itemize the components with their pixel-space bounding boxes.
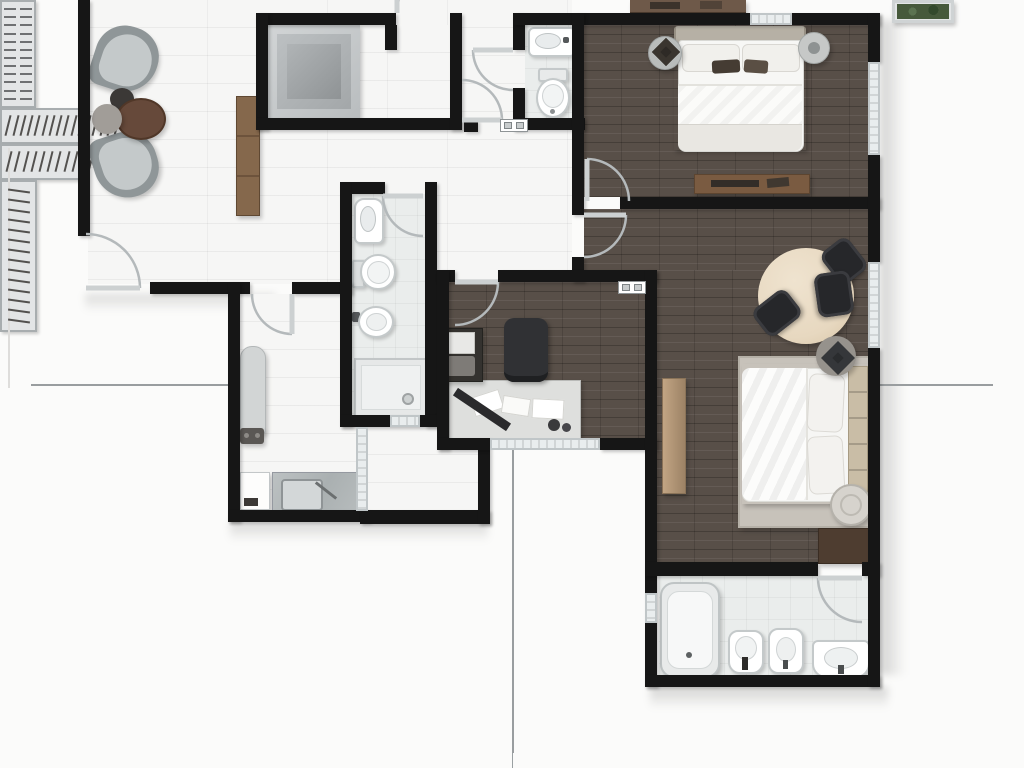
hanger-tick (63, 116, 70, 137)
hanger-tick (63, 152, 70, 173)
hanger-tick (4, 33, 16, 35)
bathtub-drain (686, 652, 692, 658)
hanger-tick (8, 238, 30, 243)
hanger-tick (5, 116, 12, 137)
bedroom1-nightstand-right (798, 32, 830, 64)
wc-basin-bowl (535, 33, 561, 49)
hanger-tick (20, 90, 32, 92)
outlet-pole (516, 122, 524, 129)
cabinet-item (447, 356, 475, 376)
sideboard-divider (237, 175, 259, 177)
bed1-duvet (678, 84, 802, 128)
wall (352, 182, 385, 194)
hanger-tick (20, 73, 32, 75)
wall (340, 415, 437, 427)
hanger-tick (41, 116, 48, 137)
outlet-pole (634, 284, 642, 291)
leg-dot (244, 433, 249, 438)
office-printer-cabinet (443, 328, 483, 382)
hanger-tick (38, 152, 45, 173)
wall (478, 450, 490, 524)
desk-camera (548, 419, 560, 431)
window-office-bottom (490, 438, 600, 450)
bath-suite-vanity (812, 640, 870, 678)
plant (897, 4, 949, 19)
outlet-pole (622, 284, 630, 291)
laundry-washer (240, 472, 270, 510)
wall (437, 270, 449, 450)
hanger-tick (20, 57, 32, 59)
shadow-bottom-laundry (230, 522, 488, 542)
ironing-board-legs (240, 428, 264, 444)
leg-dot (255, 433, 260, 438)
bath-main-shower (354, 358, 428, 417)
sideboard-divider (237, 135, 259, 137)
bed2-duvet (742, 368, 808, 500)
toilet-flush-mark (742, 657, 748, 670)
hanger-tick (4, 16, 16, 18)
bidet-bowl (776, 637, 796, 662)
bedroom1-bed (674, 26, 806, 150)
bed2-pillow (807, 373, 846, 433)
shadow-right (880, 20, 906, 675)
hanger-tick (20, 65, 32, 67)
basin-bowl (360, 206, 376, 232)
wall (868, 348, 880, 687)
wall (360, 510, 490, 524)
hanger-tick (4, 41, 16, 43)
hanger-tick (8, 228, 30, 233)
wall (572, 13, 584, 215)
wall (385, 25, 397, 50)
cabinet-item (700, 1, 722, 9)
hanger-tick (8, 188, 30, 193)
suite-stool-bottom (830, 484, 872, 526)
hanger-tick (14, 152, 21, 173)
bedroom1-dresser (694, 174, 810, 194)
elevator-cab (268, 25, 360, 118)
wall (868, 155, 880, 262)
hanger-tick (56, 116, 63, 137)
printer (447, 332, 475, 354)
wall (340, 182, 352, 427)
office-chair (504, 318, 548, 382)
wall (645, 675, 880, 687)
hanger-tick (4, 98, 16, 100)
window-suite-bathroom-left (645, 593, 657, 623)
bidet-tap (783, 660, 788, 669)
hanger-tick (4, 81, 16, 83)
wc-basin-tap (563, 37, 569, 43)
bathtub (660, 582, 720, 678)
hanger-tick (34, 116, 41, 137)
bath-main-bidet (358, 306, 394, 338)
office-closet-rail (0, 180, 37, 332)
hanger-tick (20, 41, 32, 43)
hanger-tick (20, 8, 32, 10)
bedroom1-shelf-wardrobe (0, 0, 36, 108)
floor-plan (0, 0, 1024, 768)
coffee-table-brown (116, 98, 166, 140)
shower-drain (402, 393, 414, 405)
desk-paper (501, 395, 531, 417)
bidet-bowl (366, 313, 387, 331)
suite-dark-cabinet (818, 528, 870, 564)
laundry-counter (272, 472, 360, 514)
balcony-cabinet (630, 0, 746, 14)
desk-paper (531, 398, 564, 420)
bath-main-toilet-bowl (360, 254, 396, 290)
planter-box (892, 0, 954, 23)
shadow-bottom-bath (650, 687, 888, 709)
hanger-tick (4, 8, 16, 10)
hanger-tick (4, 24, 16, 26)
hanger-tick (8, 288, 30, 293)
wall (256, 13, 268, 130)
wall (256, 118, 462, 130)
hanger-tick (47, 152, 54, 173)
hanger-tick (8, 208, 30, 213)
hanger-tick (20, 16, 32, 18)
hanger-tick (22, 152, 29, 173)
wall (437, 438, 490, 450)
wall (256, 13, 396, 25)
hanger-tick (19, 116, 26, 137)
hanger-tick (30, 152, 37, 173)
armchair-cushion (95, 131, 159, 196)
wc-washbasin (528, 27, 576, 57)
vanity-tap (838, 665, 844, 674)
wc-toilet-flush (550, 109, 555, 114)
suite-bench (662, 378, 686, 494)
hanger-tick (55, 152, 62, 173)
hanger-tick (8, 318, 30, 323)
bed1-throw (678, 124, 802, 151)
suite-bed (742, 364, 868, 504)
wall (620, 197, 880, 209)
wall (464, 120, 478, 132)
wall (78, 0, 90, 236)
ironing-board (240, 346, 266, 434)
wardrobe-shelf-column (2, 2, 18, 106)
hanger-tick (20, 98, 32, 100)
hanger-tick (70, 116, 77, 137)
hanger-tick (8, 278, 30, 283)
hanger-tick (8, 308, 30, 313)
bath-suite-bidet (768, 628, 804, 674)
hanger-tick (8, 298, 30, 303)
wc-toilet-bowl (536, 78, 570, 118)
wall (868, 13, 880, 62)
wall (513, 13, 880, 25)
elevator-cab-inner (287, 44, 341, 99)
suite-chair (813, 270, 855, 319)
wall (425, 182, 437, 427)
window-bedroom1-top (750, 13, 792, 25)
wall (450, 13, 462, 130)
window-bedroom1-right (868, 62, 880, 155)
cabinet-item (650, 2, 680, 9)
toilet-seat (367, 261, 390, 284)
bed1-accent-pillow (744, 59, 769, 74)
hanger-tick (8, 268, 30, 273)
hanger-tick (20, 81, 32, 83)
hanger-tick (4, 57, 16, 59)
outlet-symbol (500, 119, 528, 132)
wall (228, 282, 240, 522)
hanger-tick (4, 90, 16, 92)
hanger-tick (4, 49, 16, 51)
hanger-tick (8, 218, 30, 223)
bath-main-washbasin (354, 198, 384, 244)
coffee-table-gray (92, 104, 122, 134)
window-bathroom-main-bottom (390, 415, 420, 427)
outlet-pole (504, 122, 512, 129)
wardrobe-shelf-column (18, 2, 34, 106)
wall (645, 562, 818, 576)
wall (645, 270, 657, 687)
wc-toilet-seat (542, 84, 564, 108)
desk-mouse (562, 423, 571, 432)
hanger-tick (20, 24, 32, 26)
washer-detail (244, 498, 258, 506)
wall (228, 510, 370, 522)
hanger-tick (8, 248, 30, 253)
hanger-tick (8, 258, 30, 263)
hanger-tick (4, 73, 16, 75)
office-desk (449, 380, 581, 440)
hanger-tick (8, 198, 30, 203)
bed1-accent-pillow (712, 59, 741, 73)
nightstand-lamp (808, 42, 820, 54)
hanger-tick (20, 49, 32, 51)
outlet-symbol (618, 281, 646, 294)
window-laundry-right (356, 427, 368, 511)
hanger-tick (48, 116, 55, 137)
hanger-tick (27, 116, 34, 137)
dresser-item (767, 177, 790, 188)
dresser-item (711, 180, 759, 187)
hanger-tick (4, 65, 16, 67)
window-suite-right (868, 262, 880, 348)
bath-suite-toilet (728, 630, 764, 674)
hanger-tick (20, 33, 32, 35)
stool-ring (840, 494, 862, 516)
hanger-tick (12, 116, 19, 137)
